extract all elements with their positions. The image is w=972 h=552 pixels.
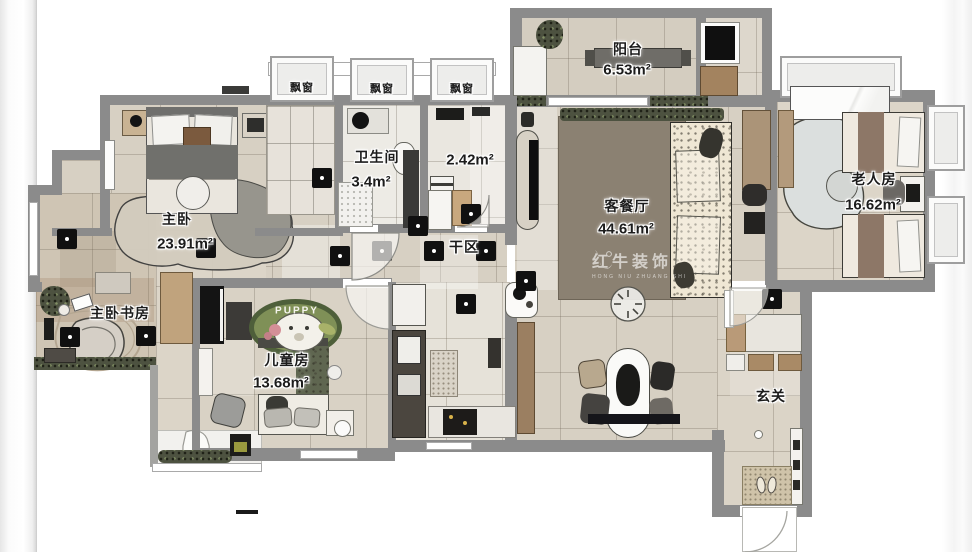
shoe-icon	[793, 460, 800, 470]
bed-runner	[183, 127, 211, 146]
ceiling-light-icon	[372, 241, 392, 261]
bay-window-label: 飘窗	[450, 80, 474, 96]
kids-door-opening	[343, 279, 391, 288]
small-appliance-icon	[488, 338, 501, 368]
stove-knob	[463, 421, 467, 425]
bay-window-label: 飘窗	[370, 80, 394, 96]
office-chair-icon	[742, 184, 767, 206]
ceiling-light-icon	[461, 204, 481, 224]
watermark-sub: HONG NIU ZHUANG SHI	[592, 274, 687, 280]
side-table	[58, 304, 70, 316]
elder-bed-2-blanket	[858, 214, 884, 278]
kitchen-counter-inset	[397, 374, 421, 396]
plant-icon	[536, 20, 563, 49]
pillow	[293, 407, 321, 428]
bay-window-elder-right2	[927, 196, 965, 264]
room-label-master-study: 主卧书房	[90, 303, 150, 323]
window-kids-south	[300, 450, 358, 459]
terrace-rail	[152, 463, 262, 472]
wall	[255, 228, 343, 236]
wall	[696, 8, 772, 18]
room-label-living: 客餐厅	[605, 196, 650, 216]
page-right-edge	[942, 0, 972, 552]
pillow	[897, 219, 922, 272]
window-balcony-slider	[548, 97, 648, 106]
shoe-icon	[793, 480, 800, 490]
elder-door-leaf	[724, 290, 734, 328]
kids-rug-text: PUPPY	[275, 306, 319, 317]
bench-arm	[681, 50, 691, 66]
master-bed-blanket	[146, 145, 238, 179]
pillow	[897, 116, 922, 167]
room-area-master: 23.91m²	[157, 236, 213, 253]
faucet-icon	[472, 107, 490, 116]
ceiling-light-icon	[424, 241, 444, 261]
framed-art-inner	[234, 442, 247, 452]
ceiling-light-icon	[136, 326, 156, 346]
bench-arm	[585, 50, 595, 66]
washbasin-icon	[334, 420, 351, 437]
room-area-living: 44.61m²	[598, 221, 654, 238]
bay-window-elder-right1	[927, 105, 965, 171]
foyer-box	[726, 354, 745, 371]
window-kitchen-south	[426, 442, 472, 450]
floor-lamp-icon	[521, 112, 534, 127]
fridge	[392, 284, 426, 326]
room-label-foyer: 玄关	[756, 386, 786, 406]
terrace-plants	[158, 450, 232, 463]
washing-machine-door	[705, 26, 735, 60]
room-label-dry-area: 干区	[449, 237, 479, 257]
ceiling-light-icon	[476, 241, 496, 261]
study-cabinet-gray	[95, 272, 131, 294]
window-study-left	[29, 202, 38, 276]
balcony-cabinet	[513, 46, 547, 96]
wall	[762, 8, 772, 100]
stove-icon	[443, 409, 477, 435]
entry-mat	[742, 466, 792, 505]
room-label-master: 主卧	[162, 209, 192, 229]
study-wardrobe	[160, 272, 193, 344]
elder-bed-1-blanket	[858, 112, 884, 173]
room-area-elder: 16.62m²	[845, 197, 901, 214]
room-label-kids: 儿童房	[265, 350, 310, 370]
table-centerpiece	[616, 364, 640, 406]
ceiling-light-icon	[330, 246, 350, 266]
ottoman	[176, 176, 210, 210]
kids-desk	[198, 348, 213, 396]
wall	[510, 8, 706, 18]
watermark: 红牛装饰 HONG NIU ZHUANG SHI	[592, 248, 687, 280]
ceiling-light-icon	[456, 294, 476, 314]
work-desk	[742, 110, 771, 190]
kitchen-sink-icon	[397, 336, 421, 364]
kitchen-mat	[430, 350, 458, 397]
wall	[712, 430, 724, 517]
ceiling-light-icon	[762, 289, 782, 309]
room-area-laundry: 2.42m²	[446, 152, 494, 169]
tv-icon	[529, 140, 538, 220]
dining-chair	[649, 361, 676, 392]
foyer-cabinet	[778, 354, 802, 371]
ceiling-light-icon	[408, 216, 428, 236]
shoe-icon	[793, 440, 800, 450]
dining-bench	[588, 414, 680, 424]
room-label-bathroom: 卫生间	[355, 147, 400, 167]
tv-icon	[247, 118, 264, 132]
bay-window-label: 飘窗	[290, 79, 314, 95]
door-stop-icon	[754, 430, 763, 439]
room-label-balcony: 阳台	[613, 39, 643, 59]
room-area-bathroom: 3.4m²	[351, 174, 390, 191]
tall-cabinet-wood	[517, 322, 535, 434]
room-label-elder: 老人房	[852, 169, 897, 189]
ceiling-light-icon	[516, 271, 536, 291]
bath-sink-icon	[352, 112, 369, 129]
entry-door-leaf	[742, 507, 797, 552]
utility-cabinet	[700, 66, 738, 96]
planter-row-indoor	[560, 108, 724, 121]
wall	[28, 282, 42, 292]
cup-icon	[526, 301, 533, 308]
elder-dresser	[778, 110, 794, 188]
printer-icon	[744, 212, 765, 234]
dining-chair	[577, 358, 608, 389]
watermark-brand: 红牛装饰	[592, 248, 687, 272]
slim-cabinet	[104, 140, 115, 190]
floor-lamp-icon	[44, 318, 54, 340]
ceiling-light-icon	[60, 327, 80, 347]
wall	[150, 365, 158, 467]
planter-strip	[514, 96, 546, 106]
foyer-cabinet	[748, 354, 774, 371]
table-lamp-icon	[130, 115, 142, 127]
stove-knob	[449, 415, 453, 419]
wall	[420, 105, 428, 230]
ac-outdoor-unit-icon	[222, 86, 249, 94]
room-area-kids: 13.68m²	[253, 375, 309, 392]
room-area-balcony: 6.53m²	[603, 62, 651, 79]
ceiling-light-icon	[312, 168, 332, 188]
dry-area-sink-unit	[428, 190, 452, 230]
piano-keys	[220, 289, 223, 341]
planter-strip	[650, 96, 708, 106]
towel-bar-icon	[436, 108, 464, 120]
pillow	[263, 407, 293, 428]
ceiling-light-icon	[57, 229, 77, 249]
kids-shelf	[226, 302, 252, 340]
laptop-icon	[906, 184, 920, 202]
floor-plan-image: { "title": "residential floor plan", "ro…	[0, 0, 972, 552]
media-console	[44, 348, 76, 363]
laundry-door-opening	[455, 225, 487, 232]
master-wardrobe	[266, 105, 335, 215]
wall	[765, 280, 935, 292]
hamper-icon	[327, 365, 342, 380]
